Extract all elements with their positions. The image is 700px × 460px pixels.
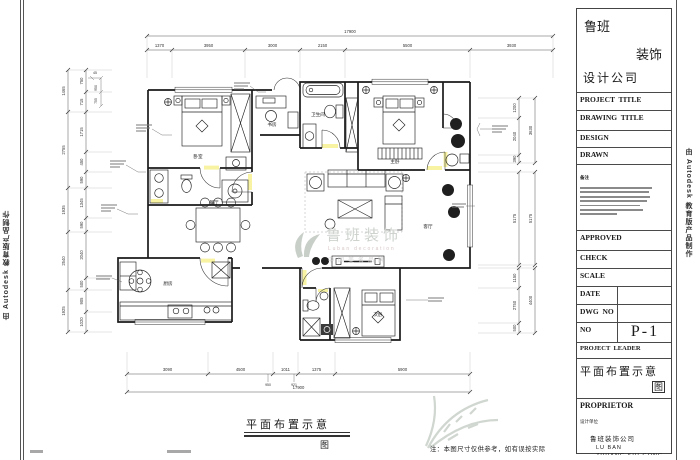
titleblock-row-date: DATE 日期 — [577, 287, 671, 305]
date-label: DATE — [580, 289, 668, 298]
scale-label: SCALE — [580, 271, 668, 280]
dimension-label: 3630 — [528, 125, 533, 135]
dimension-label: 4400 — [528, 295, 533, 305]
titleblock-row-project-leader: PROJECT LEADER 工程负责 — [577, 343, 671, 359]
titleblock-row-project-title: PROJECT TITLE — [577, 93, 671, 111]
proprietor-pinyin-2: ZHUANG SHI GONG SI — [596, 453, 668, 455]
dimension-label: 2750 — [512, 300, 517, 310]
proprietor-label: PROPRIETOR — [580, 401, 668, 410]
titleblock-row-drawing-title: DRAWING TITLE 图纸名称 — [577, 111, 671, 131]
company-name-3: 设计公司 — [583, 69, 639, 86]
room-label: 厨房 — [163, 280, 173, 287]
dimension-label: 390 — [512, 155, 517, 163]
dimension-label: 1375 — [312, 367, 322, 372]
drawing-title-label: DRAWING TITLE — [580, 113, 668, 122]
company-name-2: 装饰 — [636, 44, 662, 63]
drawing-name-suffix: 图 — [652, 381, 665, 393]
dimension-label: 4500 — [236, 367, 246, 372]
title-block: 鲁班 装饰 设计公司 PROJECT TITLE DRAWING TITLE 图… — [576, 8, 672, 454]
washer — [321, 324, 333, 335]
furniture — [120, 83, 469, 338]
titleblock-row-drawn: DRAWN 绘图 张情 — [577, 148, 671, 165]
titleblock-divider — [617, 323, 618, 342]
dimension-label: 5500 — [403, 43, 413, 48]
dimension-label: 3950 — [204, 43, 214, 48]
proprietor-company: 鲁班装饰公司 — [590, 433, 668, 443]
dimension-label: 45 — [93, 71, 97, 75]
company-name-1: 鲁班 — [584, 16, 610, 35]
dimension-label: 500 — [512, 324, 517, 332]
dimension-label: 1935 — [61, 205, 66, 215]
dimension-label: 3930 — [507, 43, 517, 48]
caption-underline-1 — [244, 432, 350, 433]
drawing-caption-suffix: 图 — [320, 438, 329, 451]
watermark-palm-icon — [418, 388, 508, 452]
titleblock-row-drawing-name: 平面布置示意 图 — [577, 359, 671, 399]
titleblock-row-scale: SCALE 比例 — [577, 269, 671, 287]
drawn-label: DRAWN — [580, 150, 668, 159]
dimension-label: 750 — [79, 77, 84, 85]
dimension-label: 17900 — [344, 29, 356, 34]
room-label: 卫生间 — [311, 111, 325, 118]
dimension-label: 3000 — [268, 43, 278, 48]
dimension-label: 1345 — [79, 198, 84, 208]
dimension-label: 1011 — [281, 367, 291, 372]
dimension-label: 921 — [291, 383, 297, 387]
titleblock-row-design: DESIGN 设计 张情 — [577, 131, 671, 148]
caption-underline-2 — [244, 435, 350, 437]
dimension-label: 1465 — [61, 86, 66, 96]
proprietor-pinyin-1: LU BAN — [596, 445, 668, 451]
dimension-label: 1020 — [79, 317, 84, 327]
dimension-label: 2040 — [79, 250, 84, 260]
dimension-label: 5175 — [528, 213, 533, 223]
dimension-label: 2755 — [61, 145, 66, 155]
proprietor-sub: 设计单位 — [580, 419, 598, 425]
drawing-caption: 平面布置示意 — [246, 416, 330, 432]
titleblock-row-notes: 备注 — [577, 165, 671, 231]
titleblock-divider — [617, 287, 618, 304]
dimension-label: 1370 — [155, 43, 165, 48]
dimension-label: 2150 — [318, 43, 328, 48]
titleblock-logo: 鲁班 装饰 设计公司 — [577, 9, 671, 93]
dimension-label: 715 — [79, 98, 84, 106]
drawing-sheet: 由 Autodesk 教育版产品制作 由 Autodesk 教育版产品制作 — [0, 0, 700, 460]
dimension-label: 1925 — [61, 306, 66, 316]
dimension-label: 590 — [79, 221, 84, 229]
autodesk-credit-right: 由 Autodesk 教育版产品制作 — [683, 148, 693, 308]
cutoff-text-left — [30, 450, 43, 453]
dimension-label: 590 — [79, 176, 84, 184]
dimension-label: 2540 — [61, 256, 66, 266]
dimension-label: 755 — [94, 98, 98, 104]
titleblock-row-check: CHECK 审核 — [577, 251, 671, 269]
dimension-label: 500 — [79, 280, 84, 288]
room-label: 书房 — [267, 121, 277, 128]
dimension-label: 2040 — [512, 131, 517, 141]
dimension-label: 905 — [79, 297, 84, 305]
check-label: CHECK — [580, 253, 668, 262]
room-label: 主卧 — [390, 158, 400, 165]
dimension-label: 950 — [94, 85, 98, 91]
plants — [312, 118, 465, 265]
room-label: 餐厅 — [209, 199, 219, 206]
dimension-label: 1200 — [512, 103, 517, 113]
room-label: 次卧 — [373, 311, 383, 318]
room-label: 客厅 — [423, 223, 433, 230]
autodesk-credit-left: 由 Autodesk 教育版产品制作 — [2, 160, 12, 320]
dimension-label: 3090 — [163, 367, 173, 372]
project-title-label: PROJECT TITLE — [580, 95, 668, 104]
cutoff-text-mid — [167, 450, 191, 453]
approved-label: APPROVED — [580, 233, 668, 242]
design-label: DESIGN — [580, 133, 668, 142]
dimension-label: 450 — [79, 158, 84, 166]
frame-line-left-inner — [23, 0, 24, 460]
sheet-number: P-1 — [619, 313, 671, 341]
dimension-label: 1715 — [79, 127, 84, 137]
frame-line-left-outer — [20, 0, 21, 460]
walls — [118, 82, 470, 340]
titleblock-row-approved: APPROVED 审定 — [577, 231, 671, 251]
reference-note: 注：本图尺寸仅供参考，如有误按实际 — [430, 444, 546, 453]
drawing-name: 平面布置示意 — [580, 363, 668, 379]
notes-text-lines — [580, 187, 668, 215]
dimension-label: 950 — [265, 383, 271, 387]
windows — [135, 79, 473, 342]
room-label: 卧室 — [193, 153, 203, 160]
project-leader-label: PROJECT LEADER — [580, 345, 668, 352]
titleblock-divider — [617, 305, 618, 322]
frame-line-right — [676, 0, 677, 460]
notes-label: 备注 — [580, 175, 589, 181]
dimension-label: 1150 — [512, 273, 517, 283]
dimension-label: 5900 — [398, 367, 408, 372]
dimension-label: 5175 — [512, 213, 517, 223]
dim-detail-lines — [88, 76, 294, 382]
titleblock-row-proprietor: PROPRIETOR 设计单位 鲁班装饰公司 LU BAN ZHUANG SHI… — [577, 399, 671, 455]
